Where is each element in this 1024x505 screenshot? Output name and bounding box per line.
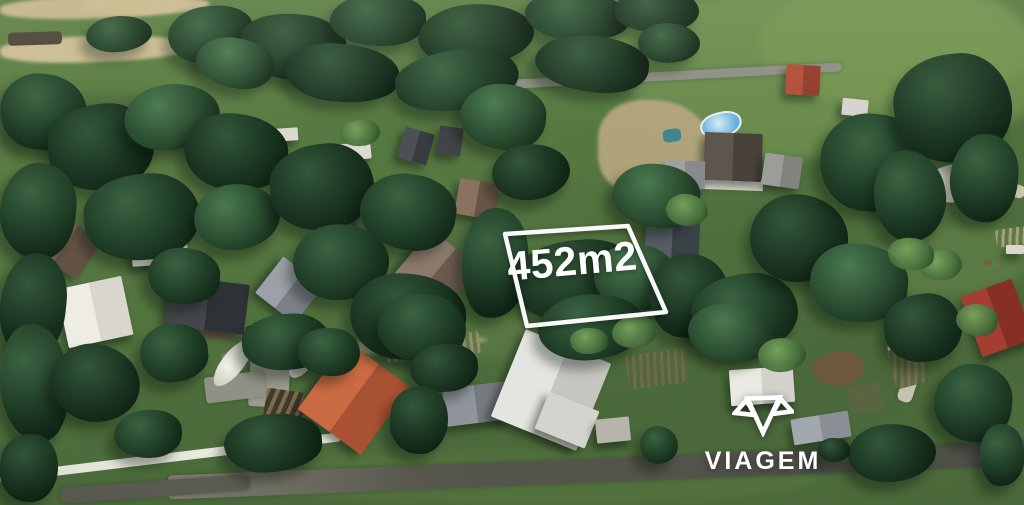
brand-wordmark: VIAGEM	[690, 447, 836, 476]
plot-boundary-overlay: 452m2	[0, 0, 1024, 505]
aerial-photo: 452m2 VIAGEM	[0, 0, 1024, 505]
viagem-gem-icon	[732, 393, 794, 437]
watermark: VIAGEM	[690, 393, 836, 476]
plot-area-label: 452m2	[505, 232, 639, 289]
